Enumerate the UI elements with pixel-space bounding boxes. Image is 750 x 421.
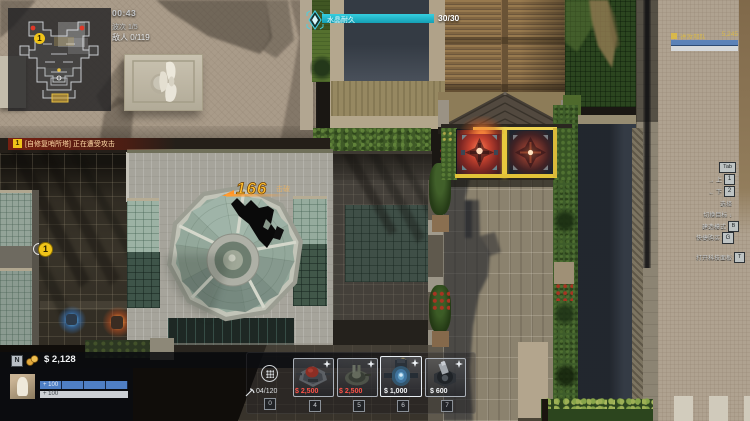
svg-text:击破: 击破 [276, 184, 290, 193]
